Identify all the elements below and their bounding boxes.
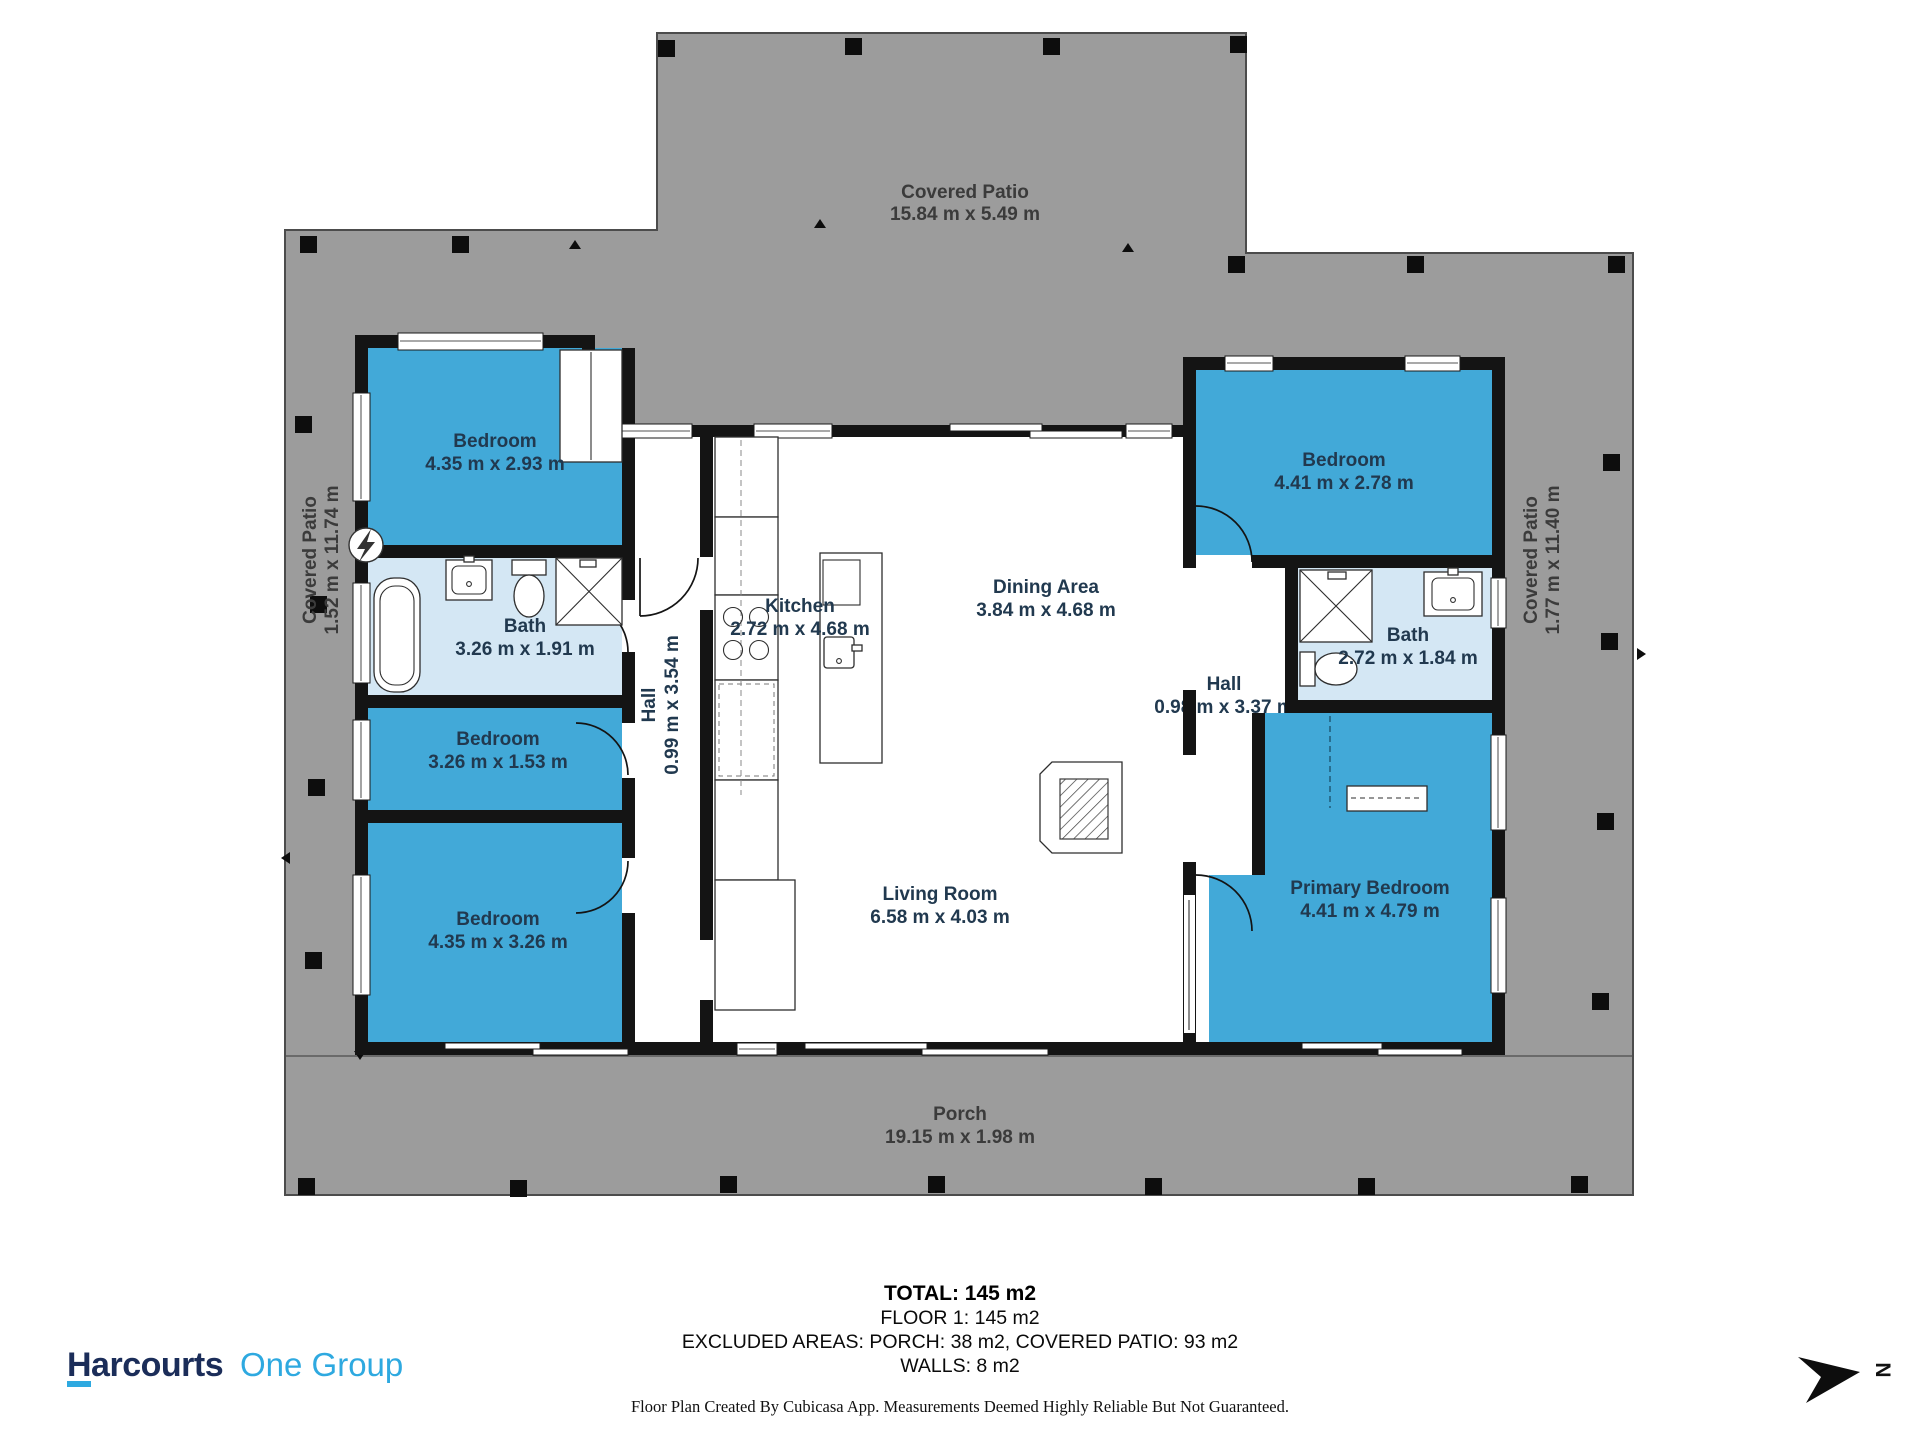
label-patio-right-name: Covered Patio: [1521, 496, 1542, 624]
label-bedroom-top-left-dims: 4.35 m x 2.93 m: [425, 454, 564, 475]
north-arrow: N: [1798, 1357, 1894, 1403]
brand-suffix: One Group: [240, 1346, 403, 1383]
label-bedroom-mid-left-name: Bedroom: [456, 729, 539, 750]
kitchen-island: [820, 553, 882, 763]
label-bedroom-right-dims: 4.41 m x 2.78 m: [1274, 473, 1413, 494]
brand-wordmark: Harcourts: [67, 1346, 223, 1384]
label-hall-right-name: Hall: [1207, 674, 1242, 695]
label-bedroom-right-name: Bedroom: [1302, 450, 1385, 471]
brand-underline: [67, 1381, 91, 1387]
label-kitchen-dims: 2.72 m x 4.68 m: [730, 619, 869, 640]
label-dining-name: Dining Area: [993, 577, 1099, 598]
floor-plan-page: Hall 0.98 m x 3.37 m: [0, 0, 1920, 1440]
toilet-icon: [512, 560, 546, 617]
shower-right-icon: [1300, 570, 1372, 642]
north-label: N: [1871, 1362, 1894, 1377]
label-patio-top-dims: 15.84 m x 5.49 m: [890, 204, 1040, 225]
label-patio-right-dims: 1.77 m x 11.40 m: [1543, 486, 1564, 635]
sink-icon: [446, 556, 492, 600]
disclaimer-text: Floor Plan Created By Cubicasa App. Meas…: [631, 1397, 1289, 1416]
label-porch-name: Porch: [933, 1104, 987, 1125]
shower-icon: [556, 558, 622, 625]
label-primary-bedroom-name: Primary Bedroom: [1290, 878, 1449, 899]
label-patio-left-name: Covered Patio: [300, 496, 321, 624]
label-kitchen-name: Kitchen: [765, 596, 835, 617]
label-bath-left-dims: 3.26 m x 1.91 m: [455, 639, 594, 660]
label-bedroom-bottom-left-name: Bedroom: [456, 909, 539, 930]
summary-block: TOTAL: 145 m2 FLOOR 1: 145 m2 EXCLUDED A…: [631, 1282, 1289, 1416]
label-patio-left-dims: 1.52 m x 11.74 m: [322, 486, 343, 635]
sink-right-icon: [1424, 568, 1482, 616]
label-hall-left-dims: 0.99 m x 3.54 m: [662, 635, 683, 774]
label-bath-right-dims: 2.72 m x 1.84 m: [1338, 648, 1477, 669]
label-bedroom-mid-left-dims: 3.26 m x 1.53 m: [428, 752, 567, 773]
label-living-name: Living Room: [882, 884, 997, 905]
floorplan-canvas: Hall 0.98 m x 3.37 m: [0, 0, 1920, 1440]
label-bedroom-top-left-name: Bedroom: [453, 431, 536, 452]
label-patio-top-name: Covered Patio: [901, 182, 1029, 203]
electrical-meter-icon: [349, 528, 383, 562]
label-hall-right-dims: 0.98 m x 3.37 m: [1154, 697, 1293, 718]
summary-walls: WALLS: 8 m2: [900, 1355, 1020, 1377]
summary-floor: FLOOR 1: 145 m2: [880, 1307, 1039, 1329]
label-bath-left-name: Bath: [504, 616, 546, 637]
label-living-dims: 6.58 m x 4.03 m: [870, 907, 1009, 928]
label-porch-dims: 19.15 m x 1.98 m: [885, 1127, 1035, 1148]
north-arrow-icon: [1798, 1357, 1860, 1403]
label-primary-bedroom-dims: 4.41 m x 4.79 m: [1300, 901, 1439, 922]
label-bath-right-name: Bath: [1387, 625, 1429, 646]
label-hall-left-name: Hall: [639, 688, 660, 723]
summary-excluded: EXCLUDED AREAS: PORCH: 38 m2, COVERED PA…: [682, 1331, 1238, 1353]
summary-total: TOTAL: 145 m2: [884, 1282, 1036, 1305]
fireplace-icon: [1040, 762, 1122, 853]
label-dining-dims: 3.84 m x 4.68 m: [976, 600, 1115, 621]
label-bedroom-bottom-left-dims: 4.35 m x 3.26 m: [428, 932, 567, 953]
bathtub-icon: [374, 578, 420, 692]
closet-icon: [560, 350, 622, 462]
brand-logo: Harcourts One Group: [67, 1346, 403, 1387]
